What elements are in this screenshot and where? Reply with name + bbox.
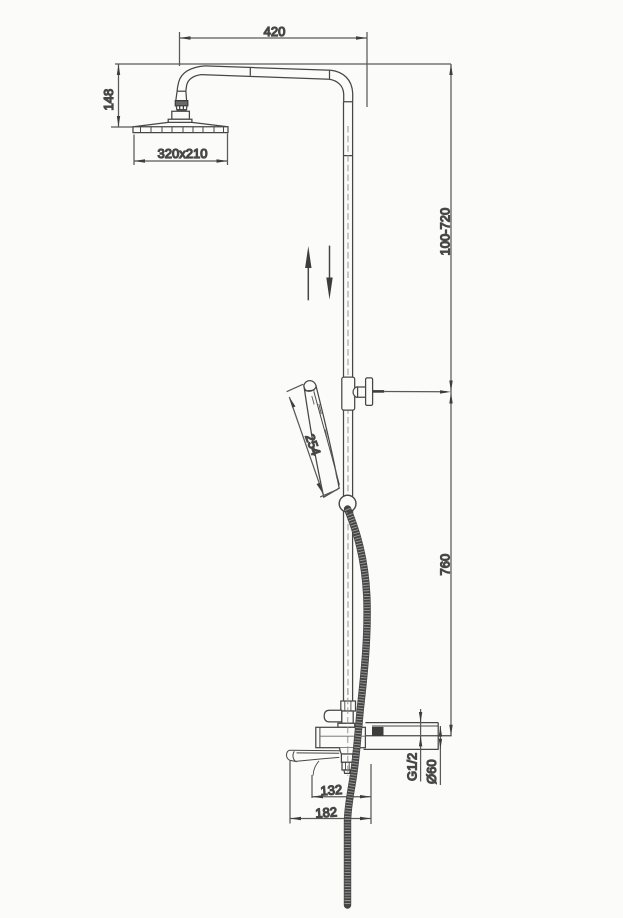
- svg-text:148: 148: [101, 89, 116, 111]
- svg-text:100-720: 100-720: [437, 208, 452, 256]
- svg-text:Ø60: Ø60: [424, 759, 439, 784]
- svg-text:G1/2: G1/2: [405, 753, 420, 781]
- svg-text:420: 420: [264, 24, 286, 39]
- svg-text:132: 132: [320, 782, 343, 798]
- svg-text:320x210: 320x210: [158, 146, 208, 161]
- svg-text:182: 182: [315, 804, 338, 820]
- svg-text:760: 760: [438, 554, 453, 576]
